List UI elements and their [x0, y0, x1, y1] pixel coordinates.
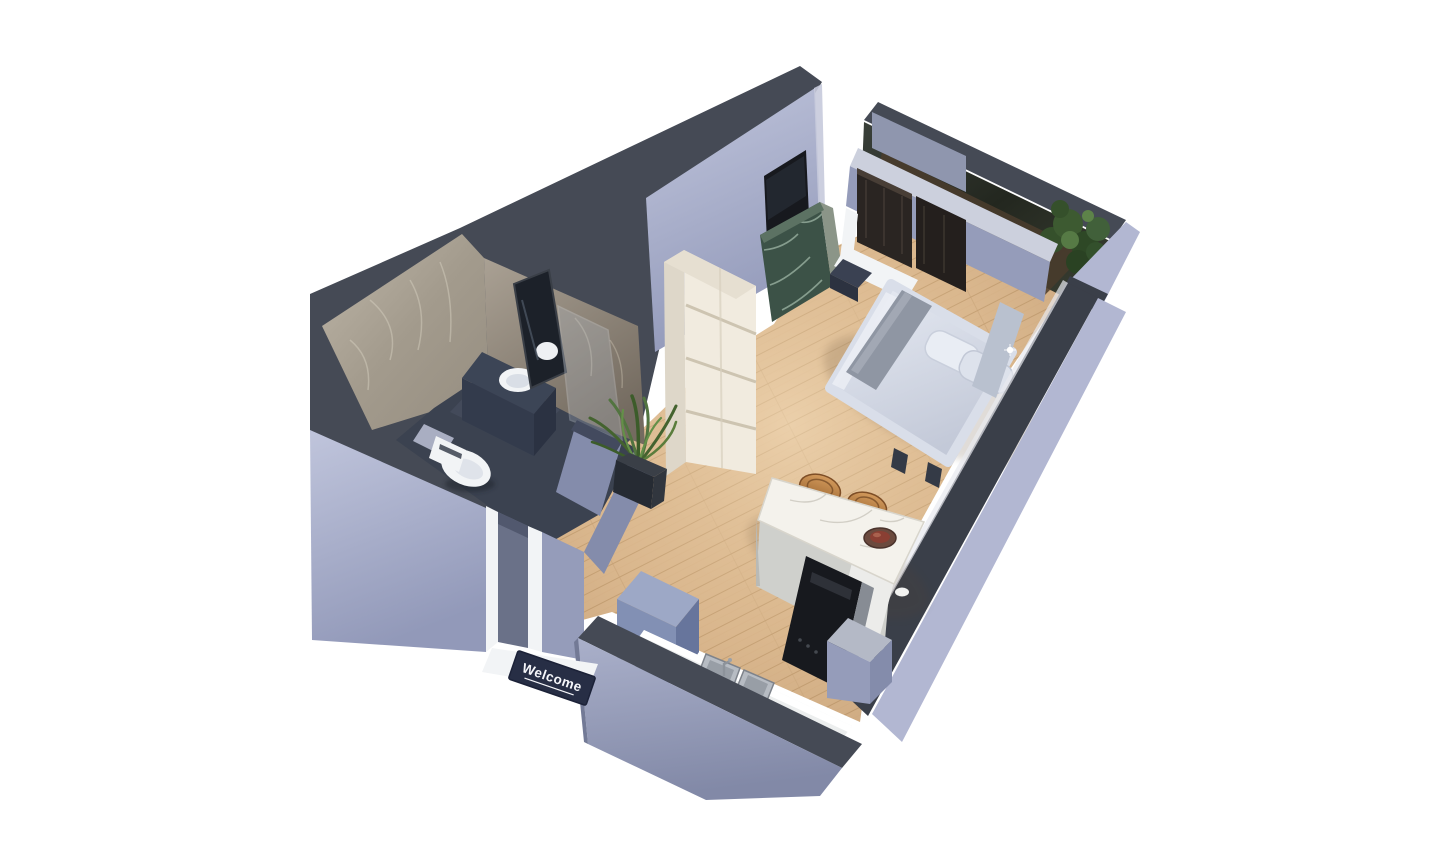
- serving-bowl: [864, 528, 896, 548]
- floorplan-svg: Welcome: [0, 0, 1445, 850]
- door-jamb-left: [486, 506, 498, 652]
- shelf-unit: [664, 250, 756, 476]
- door-jamb-right: [528, 526, 542, 652]
- floorplan-render: Welcome: [0, 0, 1445, 850]
- cup: [895, 588, 909, 597]
